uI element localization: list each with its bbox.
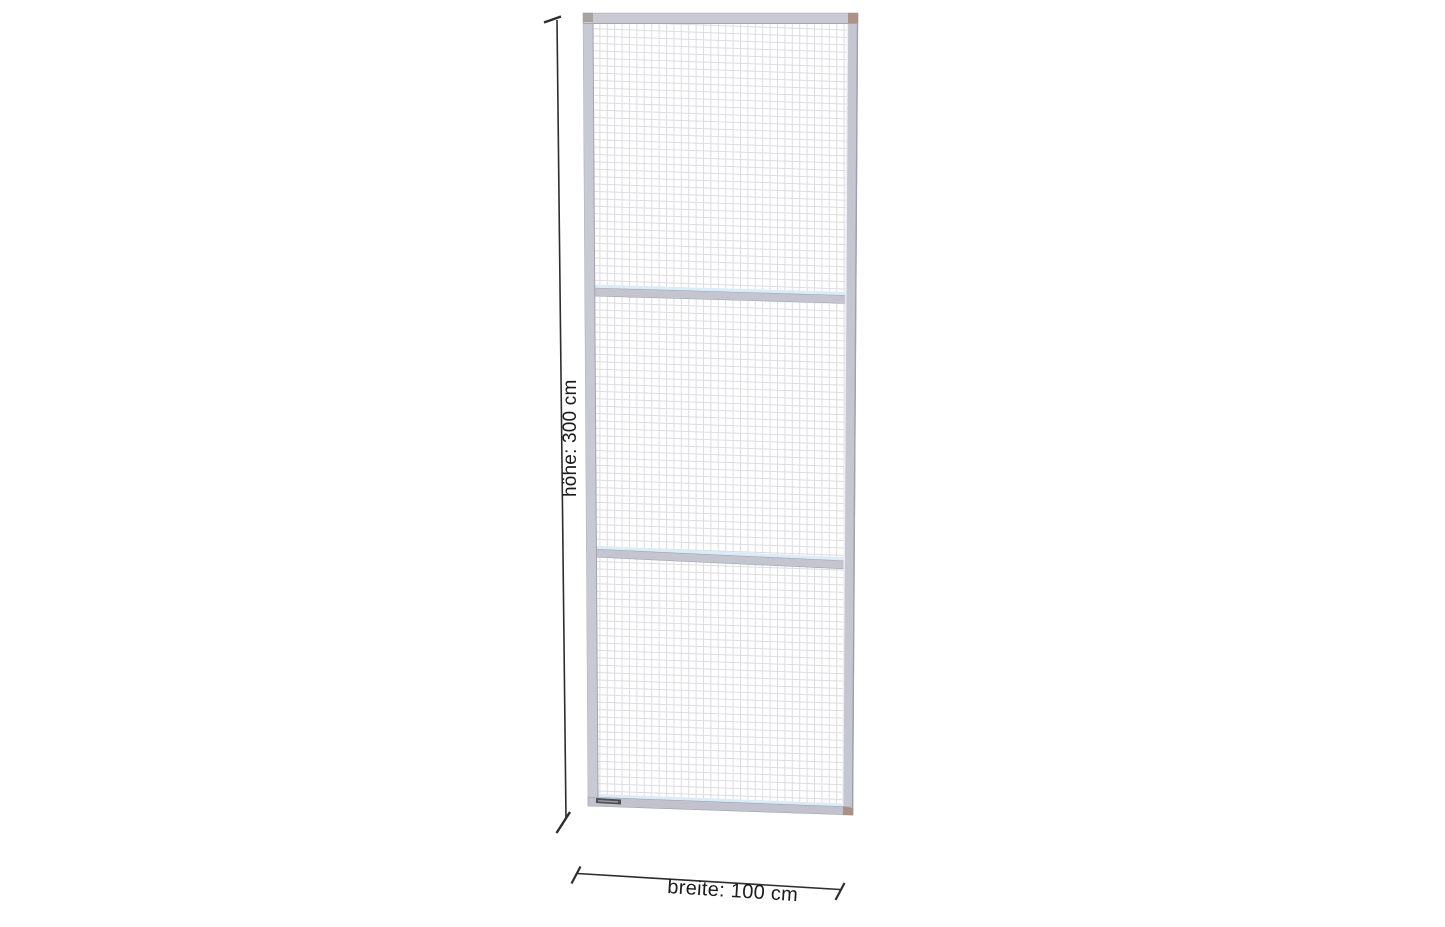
mesh-section-bottom <box>588 557 848 807</box>
corner-cap-top-left <box>583 13 593 22</box>
drawing-stage: höhe: 300 cm breite: 100 cm <box>0 0 1445 927</box>
corner-cap-top-right <box>848 13 858 23</box>
mesh-panel-diagram: höhe: 300 cm breite: 100 cm <box>0 0 1445 927</box>
top-rail <box>583 13 858 24</box>
height-dimension-label: höhe: 300 cm <box>560 379 581 497</box>
corner-cap-bottom-right <box>843 807 853 816</box>
mesh-section-top <box>593 23 848 295</box>
mesh-section-middle <box>592 296 848 561</box>
